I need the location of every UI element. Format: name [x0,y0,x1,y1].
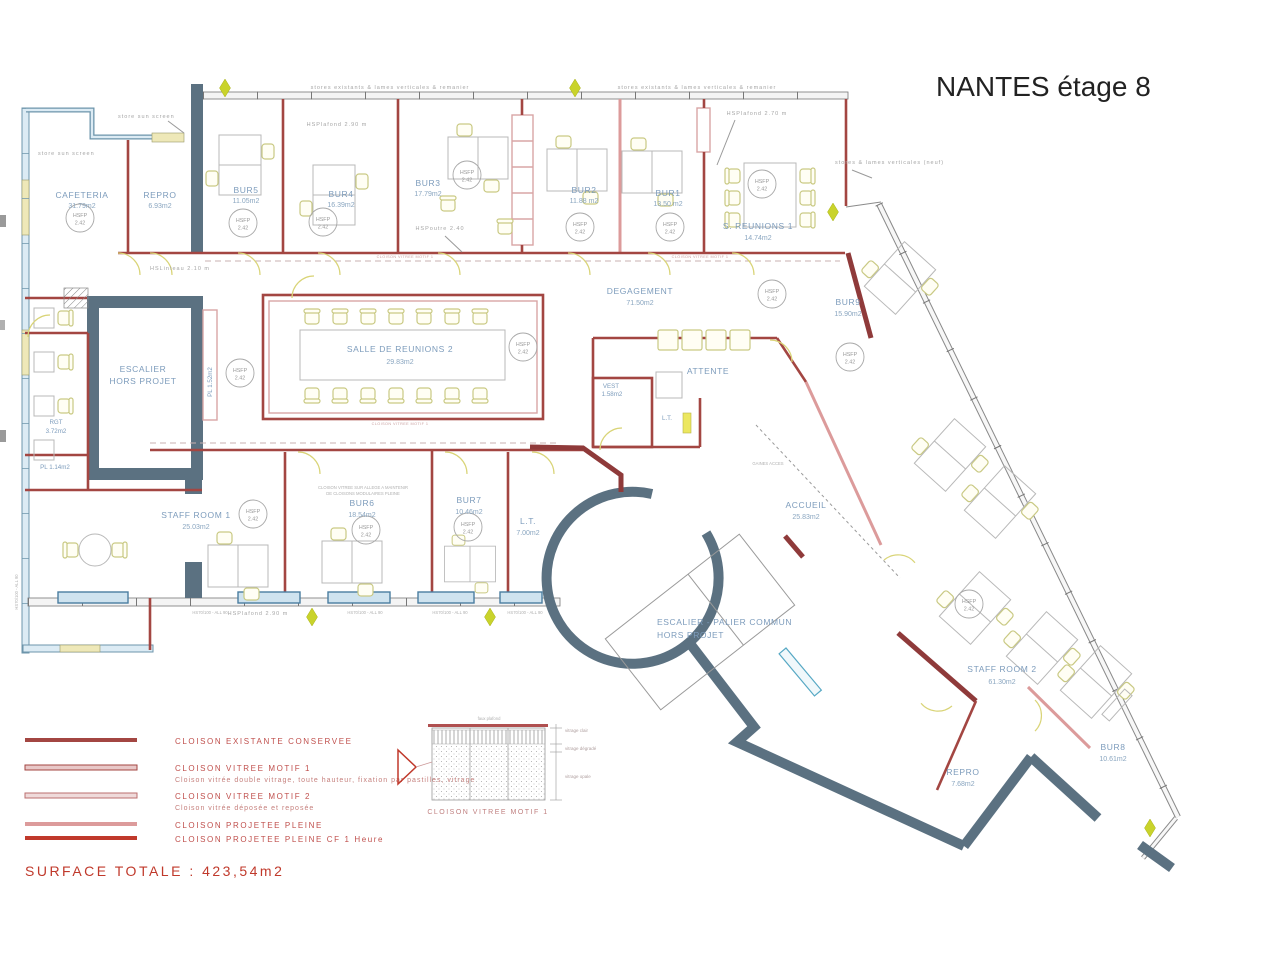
door-bur1 [648,253,670,275]
legend-swatch-existante [25,738,137,742]
room-label-palier2: HORS PROJET [657,630,724,640]
hsfp-bur7: HSFP2.42 [454,513,482,541]
svg-text:2.42: 2.42 [575,230,586,236]
scan-mark-3 [0,430,6,442]
chair-r1a [725,168,740,184]
svg-text:HSFP: HSFP [359,525,374,531]
door-attente [770,340,792,362]
room-label-reunion2: SALLE DE REUNIONS 2 [347,344,453,354]
svg-text:HSFP: HSFP [316,217,331,223]
room-area: 31.79m2 [68,203,95,210]
wall-tag-2: CLOISON VITREE MOTIF 1 [672,255,729,259]
room-label-accueil: ACCUEIL [785,500,826,510]
north-facade-wall [203,92,848,99]
floor-plan-page: HSFP2.42 HSFP2.42 HSFP2.42 HSFP2.42 HSFP… [0,0,1280,960]
room-label-bur1: BUR1 [655,188,680,198]
hsfp-degagement: HSFP2.42 [758,280,786,308]
chair-annex2 [58,354,73,370]
detail-label-clair: vitrage clair [565,728,589,733]
wall-staff2-west [898,633,976,701]
pl-closet-strip [203,310,217,420]
svg-text:HSFP: HSFP [233,368,248,374]
sun-screen-leader [168,121,184,133]
table-reunion2 [300,330,505,380]
room-label-bur3: BUR3 [415,178,440,188]
svg-text:2.42: 2.42 [462,178,473,184]
svg-text:HSFP: HSFP [755,179,770,185]
room-label-bur8: BUR8 [1100,742,1125,752]
legend-swatch-projetee [25,822,137,826]
scan-mark-1 [0,215,6,227]
svg-text:HSFP: HSFP [516,342,531,348]
window-note-west: HS70/100 - ALL 90 [14,574,19,610]
window-note-1: HS70/100 - ALL 90 [192,610,228,615]
chair-bur3b [497,219,513,234]
room-area: 25.83m2 [792,514,819,521]
chair-annex1 [58,310,73,326]
room-label-escalier2: HORS PROJET [109,376,176,386]
hsfp-wing-top: HSFP2.42 [836,343,864,371]
chair-r1e [800,190,815,206]
svg-text:2.42: 2.42 [318,225,329,231]
page-title: NANTES étage 8 [936,71,1151,102]
wall-tag-1: CLOISON VITREE MOTIF 1 [377,255,434,259]
marker-diamonds [220,79,1156,837]
window-note-4: HS70/100 - ALL 90 [507,610,543,615]
door-bur3 [438,253,460,275]
legend-label-projetee: CLOISON PROJETEE PLEINE [175,821,323,830]
room-label-pl114: PL 1.14m2 [40,464,70,471]
sun-screen-sill [152,133,184,142]
radiator-4 [418,592,474,603]
svg-text:2.42: 2.42 [757,187,768,193]
window-note-2: HS70/100 - ALL 90 [347,610,383,615]
wall-accueil-dark [785,536,803,557]
door-cafeteria [118,253,140,275]
room-label-lt-small: L.T. [662,415,672,422]
hsfp-bur3: HSFP2.42 [453,161,481,189]
detail-band-clair [432,730,545,744]
diamond-icon [307,608,318,626]
door-bur2 [568,253,590,275]
chair-bur3a [440,196,456,211]
hsfp-bur6: HSFP2.42 [352,516,380,544]
door-repro2 [921,689,952,720]
stair-ramp [779,648,821,696]
room-area: 3.72m2 [46,428,67,435]
hsfp-staff1: HSFP2.42 [239,500,267,528]
legend-swatch-cf [25,836,137,840]
cloison-note-1: CLOISON VITREE SUR ALLEGE A MAINTENIR [318,485,408,490]
door-bur6 [298,452,320,474]
svg-text:HSFP: HSFP [765,289,780,295]
room-label-vest: VEST [603,383,619,390]
slate-stub-2 [185,562,202,598]
hsfp-bur2: HSFP2.42 [566,213,594,241]
stores-neuf-note: stores & lames verticales (neuf) [835,160,944,166]
room-area: 10.61m2 [1099,756,1126,763]
door-lt [532,452,554,474]
legend-label-motif2: CLOISON VITREE MOTIF 2 [175,792,311,801]
radiator-1 [58,592,128,603]
workstation-staff1 [208,532,268,600]
room-area: 7.68m2 [951,781,974,788]
room-label-repro2: REPRO [946,767,979,777]
detail-drawing: faux plafond vitrage clair vitrage dégra… [398,716,597,816]
door-bur7 [445,452,467,474]
room-area: 11.88 m2 [570,198,599,205]
room-label-palier: ESCALIER - PALIER COMMUN [657,617,792,627]
room-label-bur4: BUR4 [328,189,353,199]
chair-r1f [800,212,815,228]
room-label-repro: REPRO [143,190,176,200]
southwest-sill [60,645,100,652]
window-note-3: HS70/100 - ALL 90 [432,610,468,615]
detail-band-opale [432,746,545,800]
door-bur4 [318,253,340,275]
room-label-bur7: BUR7 [456,495,481,505]
hslinteau-note: HSLinteau 2.10 m [150,266,210,272]
svg-text:2.42: 2.42 [235,376,246,382]
hsplafond-note-1: HSPlafond 2.90 m [307,122,368,128]
svg-text:HSFP: HSFP [73,213,88,219]
workstation-bur3 [448,124,508,192]
hsfp-reunion2: HSFP2.42 [509,333,537,361]
legend-caption-motif1: Cloison vitrée double vitrage, toute hau… [175,777,475,784]
bench-attente [658,330,750,350]
legend-label-cf: CLOISON PROJETEE PLEINE CF 1 Heure [175,835,384,844]
chair-annex3 [58,398,73,414]
surface-total: SURFACE TOTALE : 423,54m2 [25,863,284,879]
room-area: 6.93m2 [148,203,171,210]
wall-tag-3: CLOISON VITREE MOTIF 1 [372,422,429,426]
room-label-reunions1: S. REUNIONS 1 [723,221,793,231]
room-label-bur9: BUR9 [835,297,860,307]
slate-bar-top [191,84,203,254]
svg-text:HSFP: HSFP [246,509,261,515]
detail-fauxplafond-line [428,724,548,727]
legend-swatch-motif1 [25,765,137,770]
west-window-sill [22,180,29,235]
svg-text:2.42: 2.42 [463,530,474,536]
room-label-bur6: BUR6 [349,498,374,508]
svg-text:2.42: 2.42 [75,221,86,227]
hsplafond-note-2: HSPlafond 2.70 m [727,111,788,117]
svg-text:HSFP: HSFP [843,352,858,358]
bur8-slate-wall [1031,757,1098,818]
scan-mark-2 [0,320,5,330]
svg-text:HSFP: HSFP [962,599,977,605]
room-area: 17.79m2 [414,191,441,198]
cupboard-strip-bur3 [512,115,533,245]
hsplafond-note-3: HSPlafond 2.90 m [228,611,289,617]
chairs-reunion2-bottom [304,388,488,403]
room-label-staff1: STAFF ROOM 1 [161,510,230,520]
svg-text:2.42: 2.42 [518,350,529,356]
svg-text:HSFP: HSFP [663,222,678,228]
hsfp-bur1: HSFP2.42 [656,213,684,241]
room-label-attente: ATTENTE [687,366,729,376]
table-annex4 [34,440,54,460]
chair-r1d [800,168,815,184]
cupboard-bur1 [697,108,710,152]
openspace-divider [756,425,900,578]
hsfp-corridor-w: HSFP2.42 [226,359,254,387]
room-label-pl152: PL 1.52m2 [207,367,214,397]
svg-text:2.42: 2.42 [238,226,249,232]
chair-staff1a [63,542,78,558]
stores-note-1: stores existants & lames verticales & re… [311,85,470,91]
detail-label-degrade: vitrage dégradé [565,746,597,751]
legend-swatch-motif2 [25,793,137,798]
diamond-icon [1145,819,1156,837]
table-annex2 [34,352,54,372]
table-annex1 [34,308,54,328]
room-area: 10.46m2 [455,509,482,516]
svg-text:2.42: 2.42 [845,360,856,366]
workstation-wing2 [955,457,1046,547]
svg-text:2.42: 2.42 [964,607,975,613]
room-area: 18.54m2 [348,512,375,519]
table-attente [656,372,682,398]
stores-note-2: stores existants & lames verticales & re… [618,85,777,91]
hsplafond-leader [717,120,735,165]
svg-text:HSFP: HSFP [236,218,251,224]
svg-text:HSFP: HSFP [460,170,475,176]
round-table-staff1 [79,534,111,566]
hatched-cupboard [64,288,88,308]
hspoutre-note: HSPoutre 2.40 [415,226,464,232]
room-label-rgt: RGT [49,419,62,426]
hsfp-reunions1: HSFP2.42 [748,170,776,198]
room-area: 61.30m2 [988,679,1015,686]
corridor-slate-wall [688,641,964,846]
room-label-bur2: BUR2 [571,185,596,195]
diamond-icon [485,608,496,626]
vest-walls [593,378,652,447]
door-staff2 [884,546,915,577]
room-label-degagement: DEGAGEMENT [607,286,673,296]
detail-arrow-leader [416,762,432,767]
svg-text:HSFP: HSFP [573,222,588,228]
door-bur5 [238,253,260,275]
radiator-5 [500,592,542,603]
legend-caption-motif2: Cloison vitrée déposée et reposée [175,805,314,812]
hsfp-bur5: HSFP2.42 [229,209,257,237]
detail-top-label: faux plafond [478,716,501,721]
svg-text:2.42: 2.42 [361,533,372,539]
room-label-bur5: BUR5 [233,185,258,195]
room-area: 15.90m2 [834,311,861,318]
room-area: 25.03m2 [182,524,209,531]
chairs-reunion2-top [304,309,488,324]
detail-caption: CLOISON VITREE MOTIF 1 [427,809,548,816]
workstation-bur7 [445,535,496,593]
table-annex3 [34,396,54,416]
hsfp-staff2: HSFP2.42 [955,590,983,618]
room-area: 71.50m2 [626,300,653,307]
door-reunions1 [732,253,754,275]
legend-label-existante: CLOISON EXISTANTE CONSERVEE [175,737,353,746]
legend-label-motif1: CLOISON VITREE MOTIF 1 [175,764,311,773]
workstation-wing1 [905,410,996,500]
stores-neuf-leader [852,170,872,178]
room-area: 16.39m2 [327,202,354,209]
sun-screen-note-2: store sun screen [118,114,175,120]
room-label-staff2: STAFF ROOM 2 [967,664,1036,674]
room-area: 11.05m2 [233,198,260,205]
sun-screen-note-1: store sun screen [38,151,95,157]
cloison-note-2: DE CLOISONS MODULAIRES PLEINE [326,491,400,496]
dashed-guides [150,261,840,443]
room-area: 14.74m2 [744,235,771,242]
room-area: 13.50 m2 [653,201,682,208]
lt-door-panel [683,413,691,433]
detail-label-opale: vitrage opale [565,774,591,779]
room-area: 1.58m2 [602,391,623,398]
workstation-bur6 [322,528,382,596]
room-area: 7.00m2 [516,530,539,537]
svg-text:HSFP: HSFP [461,522,476,528]
hspoutre-leader [445,236,462,252]
svg-text:2.42: 2.42 [767,297,778,303]
room-label-cafeteria: CAFETERIA [55,190,108,200]
svg-text:2.42: 2.42 [248,517,259,523]
floor-plan-drawing: HSFP2.42 HSFP2.42 HSFP2.42 HSFP2.42 HSFP… [0,0,1280,960]
chair-r1b [725,190,740,206]
svg-text:2.42: 2.42 [665,230,676,236]
room-label-lt: L.T. [520,516,536,526]
diamond-icon [828,203,839,221]
gaines-note: GAINES ACCES [752,461,783,466]
room-area: 29.83m2 [386,359,413,366]
chair-staff1b [112,542,127,558]
stairwell-interior [99,308,191,468]
wall-lt-dark [530,447,621,492]
wall-staff2-bur8 [1028,687,1090,748]
room-label-escalier: ESCALIER [120,364,167,374]
